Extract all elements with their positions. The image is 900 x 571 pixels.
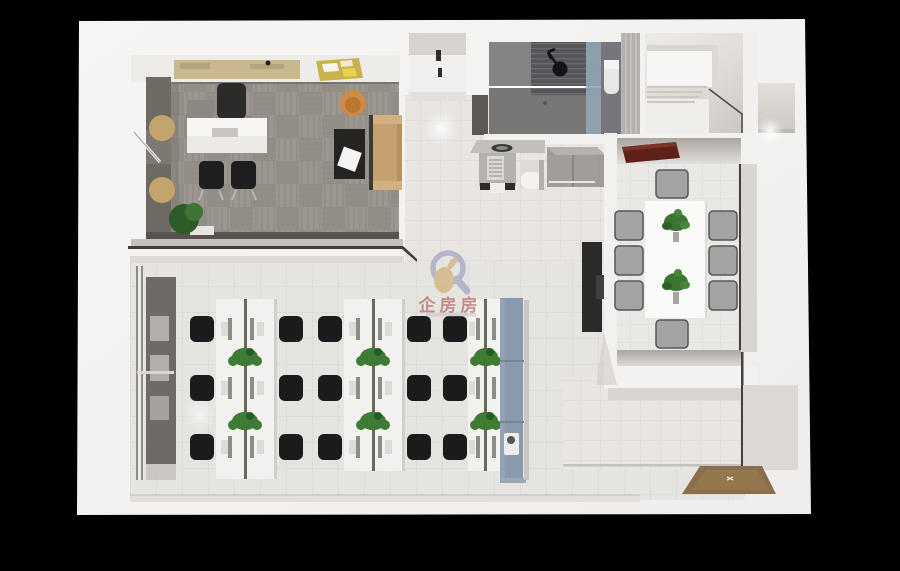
svg-text:企房房: 企房房: [418, 295, 482, 315]
